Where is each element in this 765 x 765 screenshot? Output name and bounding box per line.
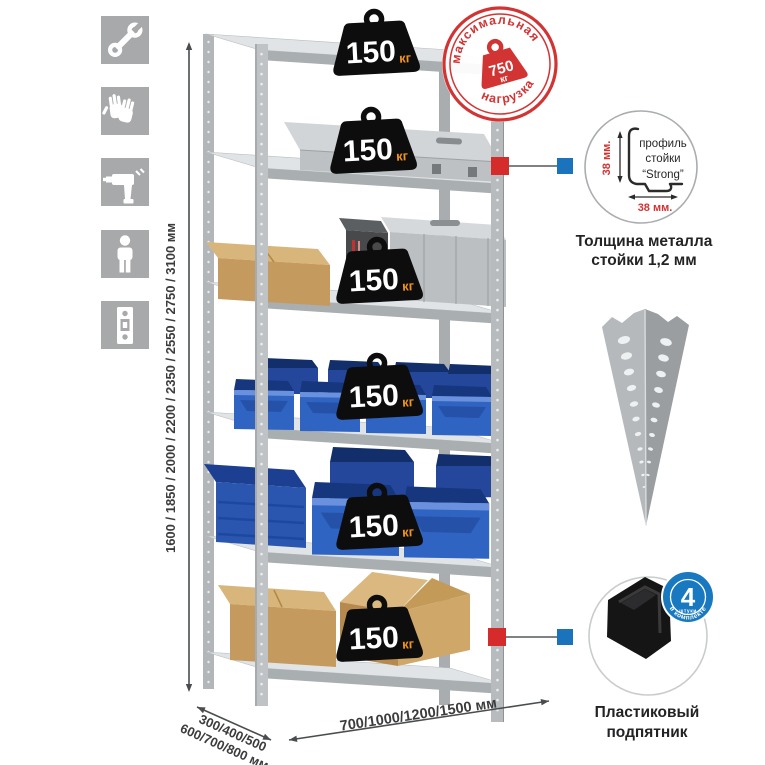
callout-source-marker (491, 157, 509, 175)
quantity-value: 4 (681, 582, 696, 612)
plastic-foot-circle: 4 штуки в комплекте (589, 571, 714, 695)
metal-thickness-caption: Толщина металла стойки 1,2 мм (576, 233, 713, 269)
wrench-icon (101, 16, 149, 64)
load-unit: кг (402, 394, 415, 410)
depth-dimension: 300/400/500 600/700/800 мм (178, 706, 278, 765)
plastic-foot-caption: Пластиковый подпятник (595, 704, 700, 741)
profile-dim-horizontal: 38 мм. (638, 202, 673, 214)
person-icon (101, 230, 149, 278)
height-dimension-label: 1600 / 1850 / 2000 / 2200 / 2350 / 2550 … (163, 223, 178, 553)
profile-label-3: “Strong” (642, 169, 684, 181)
callout-target-marker (557, 158, 573, 174)
shelf-6: 150 кг (206, 572, 504, 694)
work-gloves-icon (99, 87, 149, 135)
profile-label-2: стойки (645, 153, 680, 165)
quantity-badge: 4 штуки в комплекте (662, 571, 714, 623)
load-value: 150 (348, 263, 400, 299)
load-unit: кг (402, 278, 415, 294)
upright-post-image (602, 309, 689, 526)
shelving-product-infographic: 1600 / 1850 / 2000 / 2200 / 2350 / 2550 … (0, 0, 765, 765)
profile-dim-vertical: 38 мм. (601, 141, 613, 176)
load-value: 150 (345, 35, 397, 71)
thickness-caption-1: Толщина металла (576, 233, 713, 250)
load-unit: кг (399, 50, 412, 66)
infographic-scene: 1600 / 1850 / 2000 / 2200 / 2350 / 2550 … (0, 0, 765, 765)
shelf-2: 150 кг (206, 107, 504, 194)
width-dimension: 700/1000/1200/1500 мм (289, 695, 549, 742)
load-unit: кг (402, 524, 415, 540)
callout-target-marker (557, 629, 573, 645)
foot-caption-1: Пластиковый (595, 704, 700, 721)
load-value: 150 (342, 133, 394, 169)
cardboard-box-left (218, 585, 336, 667)
height-dimension: 1600 / 1850 / 2000 / 2200 / 2350 / 2550 … (163, 42, 192, 692)
width-dimension-label: 700/1000/1200/1500 мм (339, 695, 498, 734)
rack-post-icon (101, 301, 149, 349)
drill-icon (101, 158, 149, 206)
thickness-caption-2: стойки 1,2 мм (591, 252, 696, 269)
foot-caption-2: подпятник (606, 724, 687, 741)
shelf-5: 150 кг (204, 447, 504, 578)
callout-source-marker (488, 628, 506, 646)
profile-label-1: профиль (639, 138, 687, 150)
load-badge: 150 кг (330, 9, 420, 76)
callout-top (491, 157, 573, 175)
profile-detail-circle: 38 мм. 38 мм. профиль стойки “Strong” (585, 111, 697, 223)
load-value: 150 (348, 509, 400, 545)
load-unit: кг (396, 148, 409, 164)
load-badge: 150 кг (327, 107, 417, 174)
shelving-unit: 150 кг 150 кг (203, 9, 506, 722)
shelf-3: 150 кг (206, 217, 506, 324)
load-value: 150 (348, 621, 400, 657)
shelf-4: 150 кг (206, 353, 504, 454)
feature-icon-column (99, 16, 149, 349)
load-unit: кг (402, 636, 415, 652)
callout-bottom (488, 628, 573, 646)
load-value: 150 (348, 379, 400, 415)
